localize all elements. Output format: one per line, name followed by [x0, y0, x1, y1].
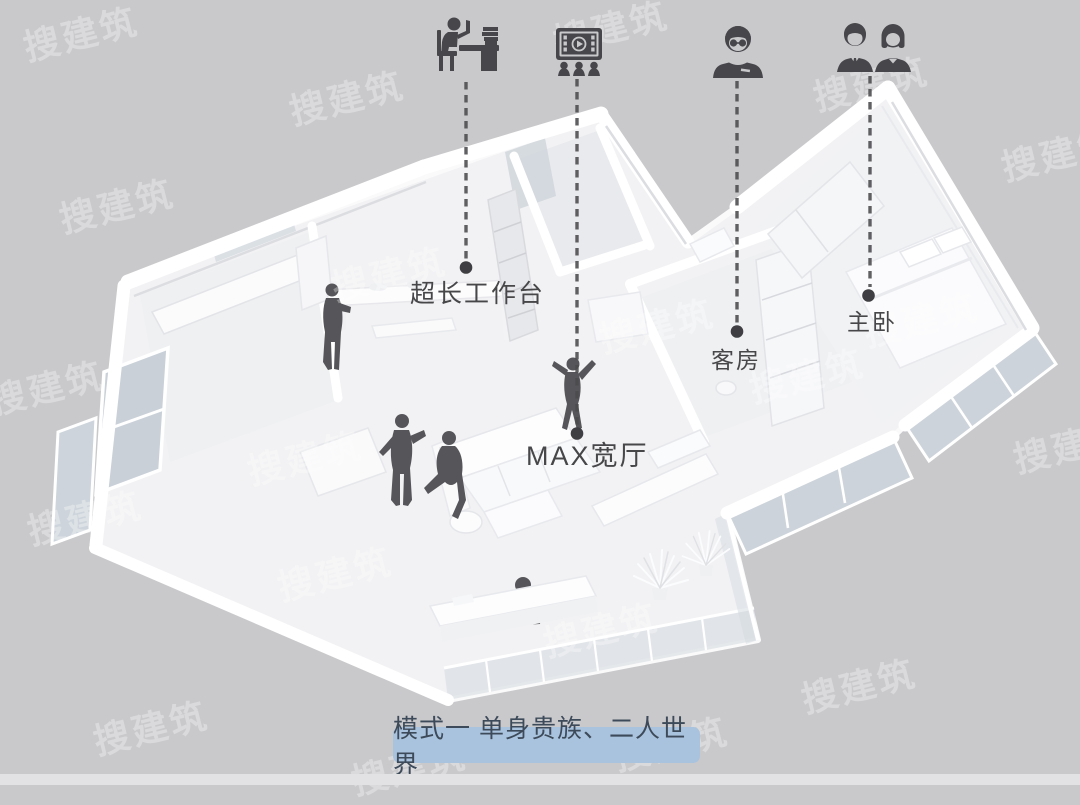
person-reading-desk-icon [433, 15, 499, 77]
mode-caption: 模式一 单身贵族、二人世界 [393, 727, 700, 763]
label-guest-room: 客房 [711, 341, 761, 375]
label-master-bedroom: 主卧 [847, 303, 897, 337]
person-glasses-icon [712, 24, 764, 78]
home-cinema-icon [556, 28, 602, 76]
floorplan-scene: 搜建筑搜建筑搜建筑搜建筑搜建筑搜建筑搜建筑搜建筑搜建筑搜建筑搜建筑搜建筑搜建筑搜… [0, 0, 1080, 785]
apartment-3d-model [0, 0, 1080, 785]
mode-caption-text: 模式一 单身贵族、二人世界 [393, 709, 700, 781]
bottom-strip [0, 774, 1080, 785]
label-max-hall: MAX宽厅 [526, 434, 649, 473]
label-worktable: 超长工作台 [410, 274, 545, 310]
couple-icon [836, 23, 914, 72]
